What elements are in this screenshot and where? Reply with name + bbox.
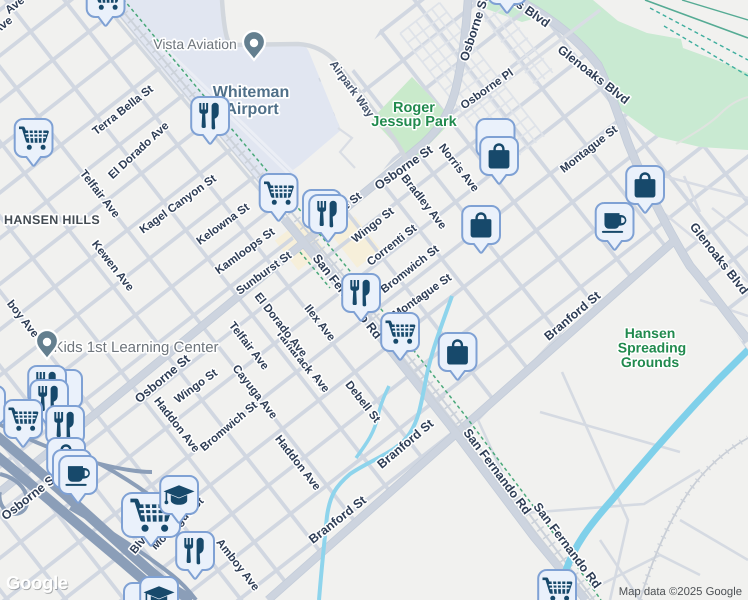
svg-text:Grounds: Grounds (621, 354, 680, 370)
svg-text:Vista Aviation: Vista Aviation (153, 36, 237, 52)
svg-text:Kids 1st Learning Center: Kids 1st Learning Center (53, 339, 218, 356)
svg-text:Jessup Park: Jessup Park (371, 114, 457, 130)
svg-text:Google: Google (6, 572, 68, 593)
svg-text:Map data ©2025 Google: Map data ©2025 Google (619, 586, 742, 598)
svg-text:Airport: Airport (225, 101, 279, 118)
svg-text:HANSEN HILLS: HANSEN HILLS (4, 213, 100, 227)
